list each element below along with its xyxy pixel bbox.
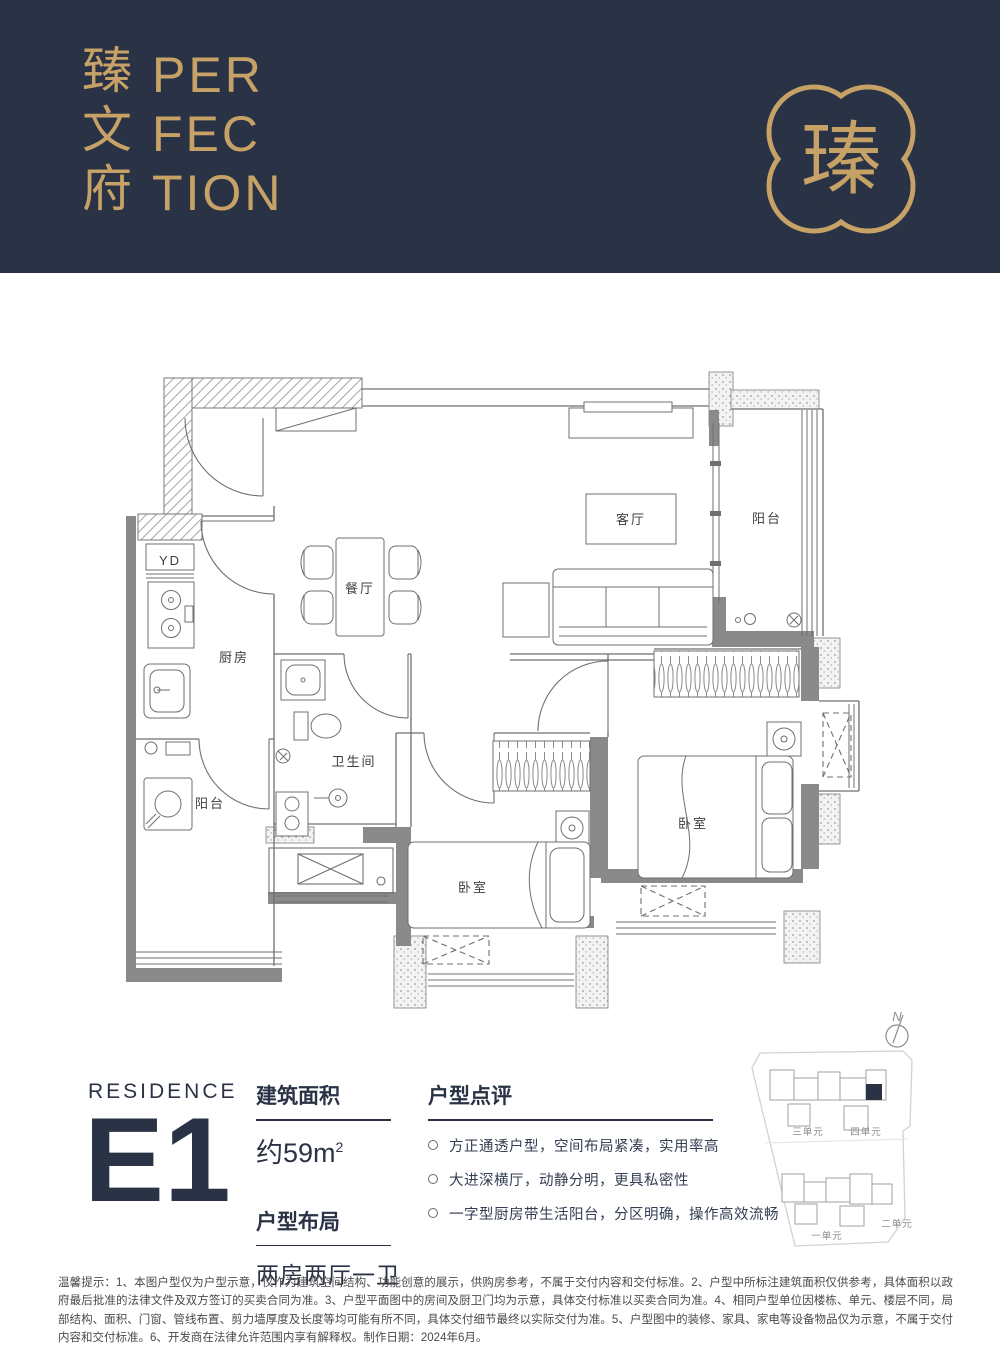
divider [256,1245,391,1247]
bedroom-right-furniture [638,651,801,878]
disclaimer-text: 温馨提示：1、本图户型仅为户型示意，仅作为建筑空间结构、功能创意的展示，供购房参… [58,1274,953,1348]
bathroom-fixtures [276,660,347,836]
review-column: 户型点评 方正通透户型，空间布局紧凑，实用率高 大进深横厅，动静分明，更具私密性… [428,1080,748,1237]
bullet-circle-icon [428,1140,438,1150]
brand-en-line: FEC [152,105,283,164]
bedroom-right-label: 卧室 [678,816,708,831]
kitchen-yd-label: YD [159,553,181,568]
brand-char: 文 [82,101,132,160]
living-room-label: 客厅 [616,512,646,527]
unit3-label: 三单元 [792,1126,824,1138]
unit4-label: 四单元 [850,1126,882,1138]
review-item: 方正通透户型，空间布局紧凑，实用率高 [428,1135,748,1156]
bullet-circle-icon [428,1174,438,1184]
site-plan-minimap: N 三单元 四单元 一单元 二单元 [740,1008,1000,1258]
brand-name-chinese: 臻 文 府 [82,42,132,219]
kitchen-label: 厨房 [219,650,249,665]
compass-icon: N [886,1009,908,1047]
building-block-south [782,1174,892,1226]
seal-glyph: 瑧 [801,115,881,204]
divider [256,1119,391,1121]
header-band: 臻 文 府 PER FEC TION 瑧 [0,0,1000,273]
layout-title: 户型布局 [256,1206,406,1236]
bedroom-middle-furniture [408,741,590,928]
flyer-page: 臻 文 府 PER FEC TION 瑧 [0,0,1000,1357]
dining-room-label: 餐厅 [345,581,375,596]
brand-name-english: PER FEC TION [152,46,283,223]
unit2-label: 二单元 [881,1218,913,1230]
bullet-circle-icon [428,1208,438,1218]
review-item: 大进深横厅，动静分明，更具私密性 [428,1169,748,1190]
divider [428,1119,713,1121]
review-title: 户型点评 [428,1080,748,1110]
unit1-label: 一单元 [811,1230,843,1242]
unit-specs-column: 建筑面积 约59m2 户型布局 两房两厅一卫 [256,1080,406,1290]
service-balcony-label: 阳台 [195,796,225,811]
review-list: 方正通透户型，空间布局紧凑，实用率高 大进深横厅，动静分明，更具私密性 一字型厨… [428,1135,748,1224]
unit-code: E1 [84,1094,231,1226]
brand-char: 府 [82,160,132,219]
bedroom-middle-label: 卧室 [458,880,488,895]
highlighted-unit [866,1084,882,1100]
review-item: 一字型厨房带生活阳台，分区明确，操作高效流畅 [428,1203,748,1224]
area-title: 建筑面积 [256,1080,406,1110]
brand-char: 臻 [82,42,132,101]
kitchen-fixtures [144,544,194,830]
bathroom-label: 卫生间 [331,754,376,769]
dining-set [276,408,421,636]
living-furniture [503,402,713,645]
brand-en-line: PER [152,46,283,105]
balcony-label: 阳台 [752,511,782,526]
area-value: 约59m2 [256,1131,406,1170]
quatrefoil-seal-icon: 瑧 [757,75,925,243]
balcony-fixtures [736,613,802,627]
brand-en-line: TION [152,164,283,223]
floorplan-drawing: YD [126,366,866,1042]
